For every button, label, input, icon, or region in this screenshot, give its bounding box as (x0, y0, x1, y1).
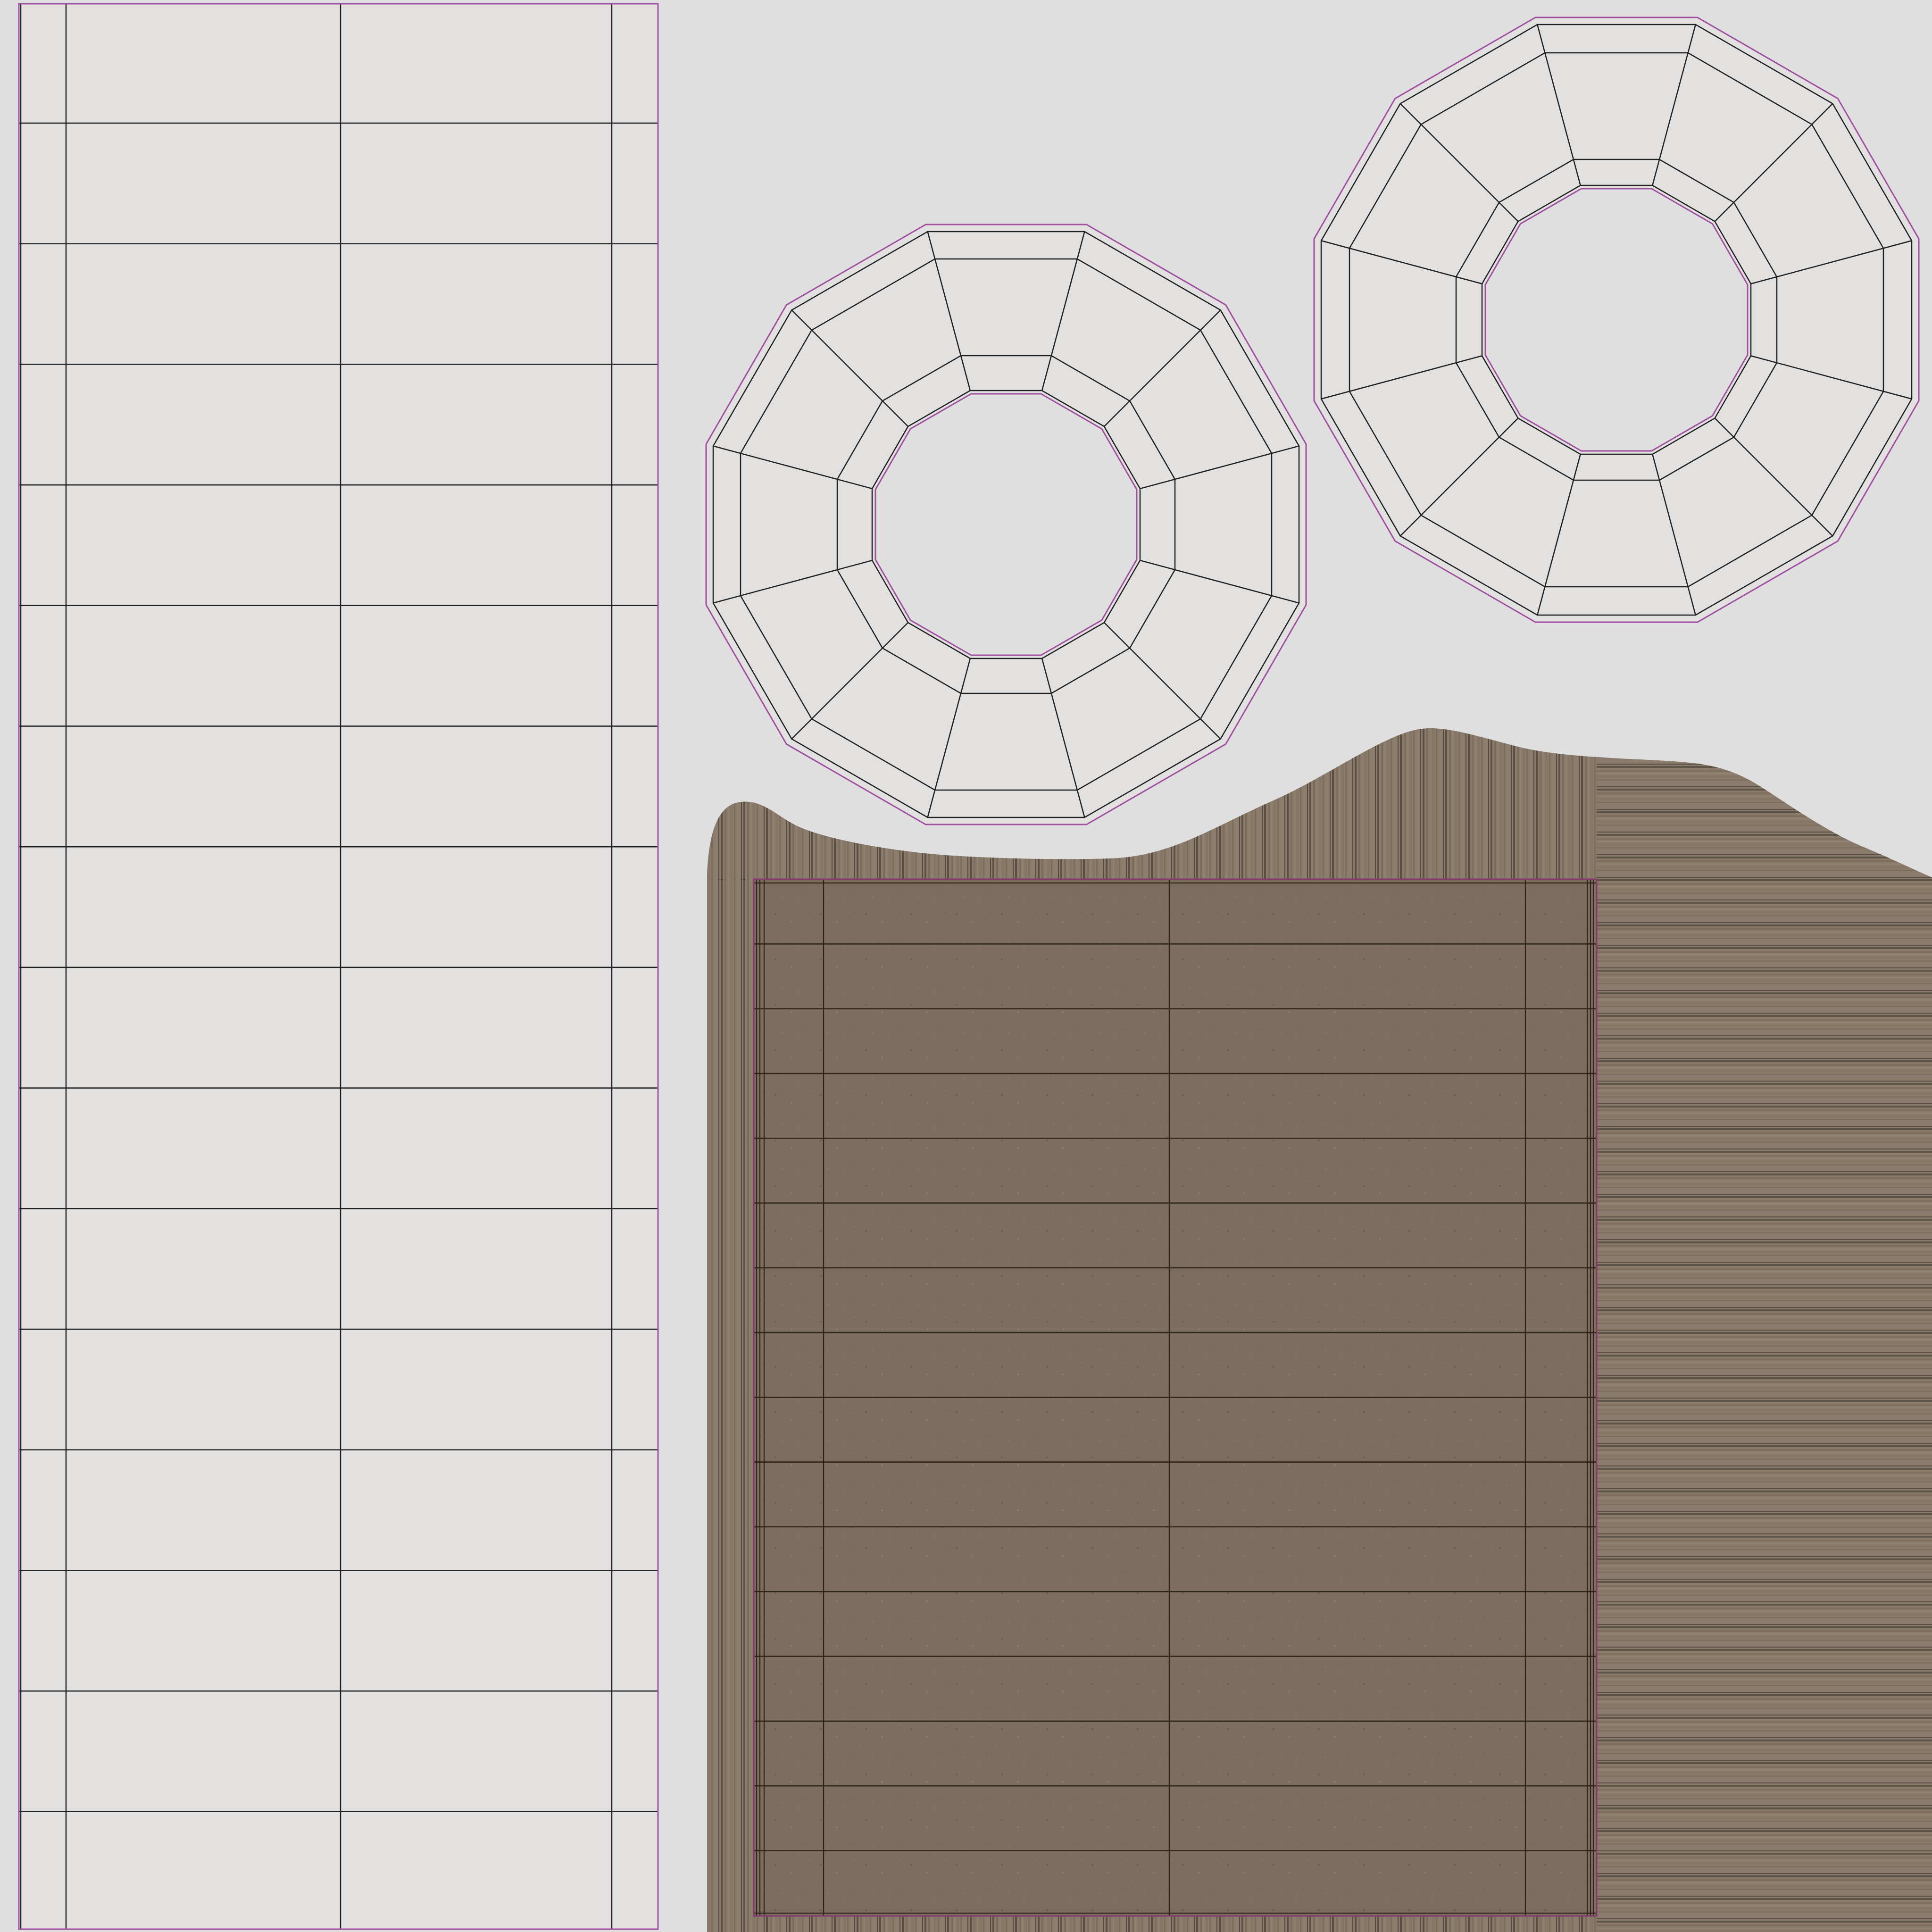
strip-fill (19, 4, 658, 1929)
uv-ring-islands (706, 17, 1919, 824)
uv-texture-layout-canvas (0, 0, 1932, 1932)
ring-right-hole-fill (1485, 189, 1748, 451)
uv-island-ring-right (1314, 17, 1919, 622)
horizontal-streak-zone (1597, 726, 1932, 1932)
texture-grid-island (754, 879, 1597, 1916)
ring-left-hole-fill (875, 394, 1137, 655)
vertical-streak-zone (754, 1916, 1597, 1932)
vertical-streak-zone (707, 879, 754, 1932)
uv-island-ring-left (706, 225, 1306, 824)
uv-strip-island (19, 4, 658, 1929)
